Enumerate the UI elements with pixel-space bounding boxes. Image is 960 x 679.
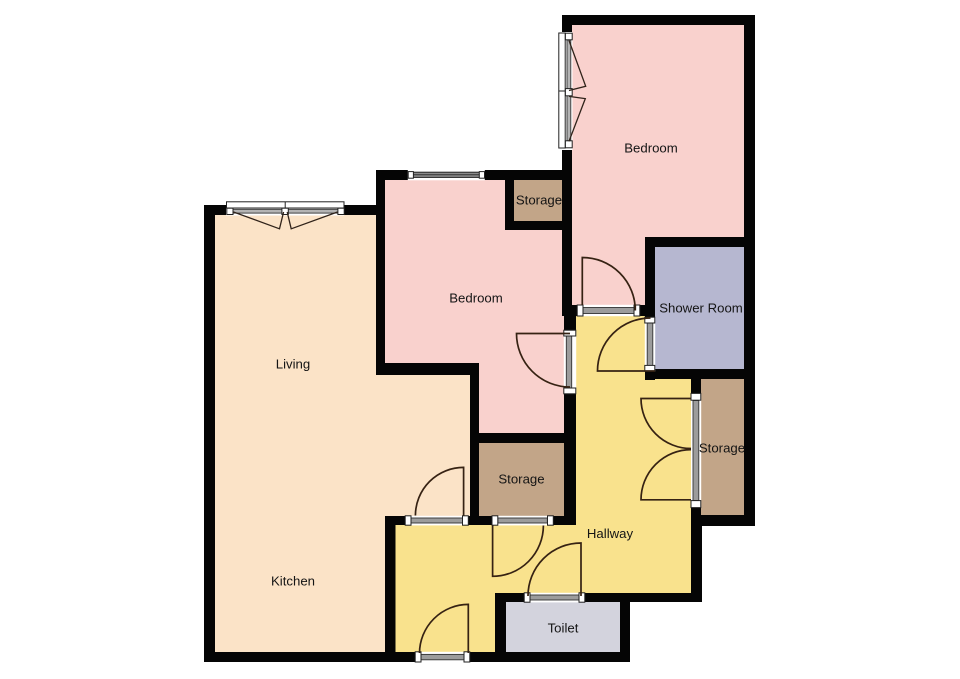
svg-text:Storage: Storage [498,472,544,487]
svg-text:Shower Room: Shower Room [659,301,743,316]
svg-text:Living: Living [276,357,310,372]
svg-text:Bedroom: Bedroom [624,141,678,156]
svg-text:Hallway: Hallway [587,526,634,541]
svg-text:Storage: Storage [699,441,745,456]
svg-text:Storage: Storage [516,193,562,208]
svg-text:Bedroom: Bedroom [449,291,503,306]
svg-text:Toilet: Toilet [548,621,579,636]
svg-text:Kitchen: Kitchen [271,574,315,589]
